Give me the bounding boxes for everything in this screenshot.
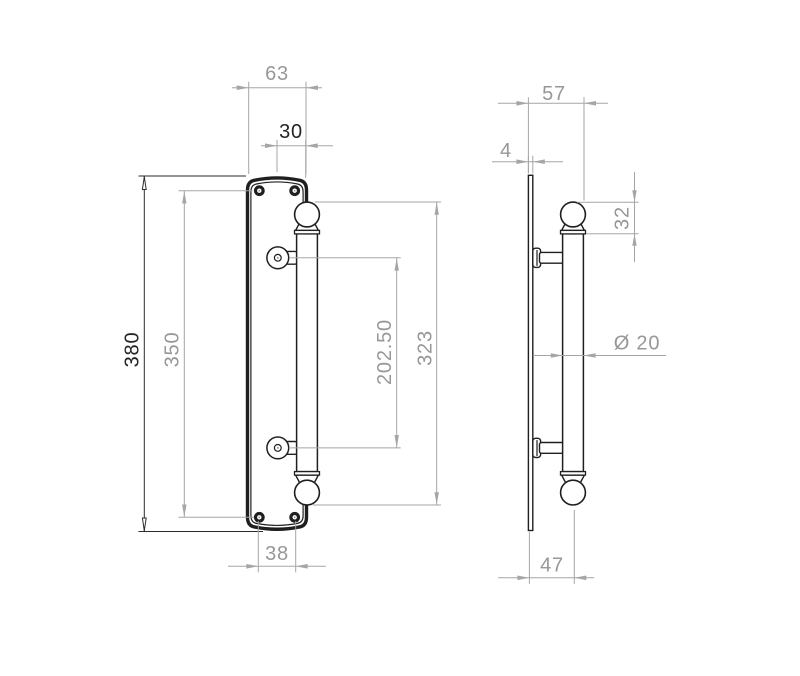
front-view: [248, 178, 320, 529]
technical-drawing-svg: 63 30 380 350: [0, 0, 800, 676]
lower-lug-side: [533, 438, 564, 457]
dim-label-32: 32: [612, 206, 634, 230]
dim-label-47: 47: [540, 555, 564, 577]
top-collar: [295, 230, 320, 234]
bottom-ball-finial: [295, 480, 320, 505]
side-view: [528, 175, 585, 530]
screw-top-left: [254, 185, 265, 196]
top-ball-finial-side: [561, 202, 586, 227]
dim-label-dia-20: Ø 20: [614, 333, 661, 355]
dim-handle-offset: 30: [261, 121, 333, 178]
grip-tube: [297, 234, 318, 472]
dim-label-202-50: 202.50: [374, 319, 396, 385]
bottom-collar: [295, 472, 320, 476]
dim-label-57: 57: [542, 83, 566, 105]
dim-label-380: 380: [122, 332, 144, 368]
lower-lug-rose: [267, 437, 289, 459]
dim-centre-projection: 47: [498, 510, 594, 584]
dim-overall-projection: 57: [498, 83, 608, 201]
upper-lug-side: [533, 248, 564, 267]
dim-plate-height: 380: [122, 176, 264, 532]
dim-label-38: 38: [265, 543, 289, 565]
backplate-edge: [528, 175, 532, 530]
dim-label-63: 63: [265, 63, 289, 85]
dim-label-350: 350: [162, 332, 184, 368]
dim-label-4: 4: [500, 140, 512, 162]
screw-top-right: [289, 185, 300, 196]
grip-tube-side: [563, 234, 584, 472]
top-ball-finial: [295, 202, 320, 227]
dim-grip-diameter: Ø 20: [533, 333, 666, 358]
dim-knob-height: 32: [577, 172, 639, 262]
screw-bottom-right: [289, 512, 300, 523]
top-collar-side: [561, 230, 586, 234]
dim-fixing-height: 350: [162, 191, 255, 518]
drawing-canvas: 63 30 380 350: [0, 0, 800, 676]
dim-plate-thickness: 4: [492, 140, 563, 174]
bottom-ball-finial-side: [561, 480, 586, 505]
upper-lug-rose: [267, 247, 289, 269]
screw-bottom-left: [254, 512, 265, 523]
bottom-collar-side: [561, 472, 586, 476]
dim-label-323: 323: [415, 330, 437, 366]
pull-handle-side: [561, 202, 586, 505]
dim-label-30: 30: [279, 121, 303, 143]
